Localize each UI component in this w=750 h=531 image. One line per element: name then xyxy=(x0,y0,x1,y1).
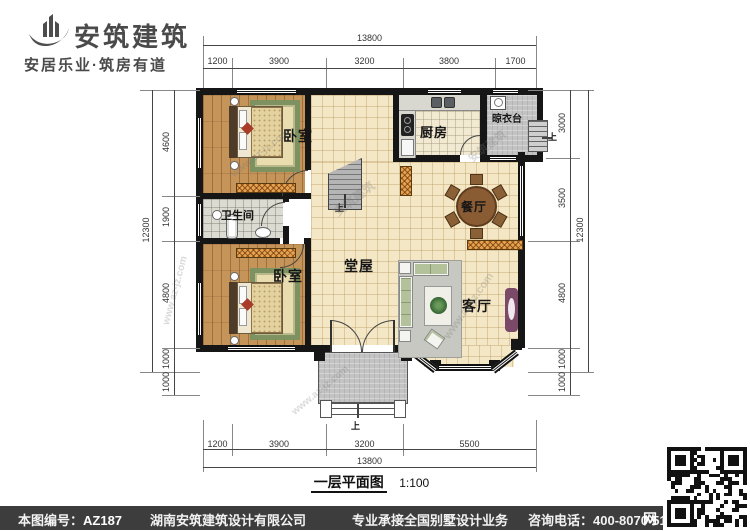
nightstand-bottom-2 xyxy=(230,336,239,345)
porch-steps xyxy=(332,402,394,418)
dim-line-right-segments xyxy=(570,90,571,395)
dim-left-total: 12300 xyxy=(141,208,151,252)
dim-line-bottom-total xyxy=(203,467,536,468)
extension-line xyxy=(546,158,580,159)
dim-left-seg-3: 4800 xyxy=(161,271,171,315)
window-bedroom-bottom-left xyxy=(196,283,203,335)
room-label-kitchen: 厨房 xyxy=(420,122,448,141)
dining-chair-4 xyxy=(470,228,483,239)
bed-bottom-pillow-2 xyxy=(239,308,247,326)
dim-line-right-total xyxy=(588,90,589,372)
extension-line xyxy=(140,90,200,91)
dim-line-top-segments xyxy=(203,68,536,69)
qr-module xyxy=(743,523,747,527)
wardrobe-bedroom-top xyxy=(236,183,296,193)
room-label-hall: 堂屋 xyxy=(344,256,374,276)
window-bathroom xyxy=(196,204,203,236)
nightstand-top-1 xyxy=(230,97,239,106)
dining-chair-1 xyxy=(470,174,483,185)
room-label-bathroom: 卫生间 xyxy=(221,207,254,223)
room-label-drying-balcony: 晾衣台 xyxy=(492,110,522,125)
window-bedroom-top xyxy=(237,88,296,95)
up-label-porch: 上 xyxy=(351,419,360,432)
net-label: 网 xyxy=(643,509,657,529)
drawing-number-label: 本图编号： xyxy=(18,513,83,528)
extension-line xyxy=(528,348,580,349)
wall-bathroom-bottom-a xyxy=(196,238,280,244)
room-label-dining: 餐厅 xyxy=(461,198,487,215)
up-label-balcony: 上 xyxy=(548,130,557,143)
hall-cabinet xyxy=(400,166,412,196)
sofa-left-cushion xyxy=(401,278,411,326)
wall-balcony-right-a xyxy=(537,95,543,120)
dim-line-top-total xyxy=(203,45,536,46)
dim-top-seg-2: 3900 xyxy=(232,56,326,66)
dining-cabinet xyxy=(467,240,523,250)
dim-top-total: 13800 xyxy=(203,33,536,43)
floor-plan: 卧室 厨房 晾衣台 餐厅 卫生间 卧室 堂屋 客厅 上 上 上 安筑建筑 www… xyxy=(0,0,750,505)
porch-entry-line xyxy=(357,404,359,418)
drawing-number: 本图编号：AZ187 xyxy=(18,510,122,529)
qr-code xyxy=(663,443,750,531)
dim-bottom-seg-4: 5500 xyxy=(403,439,536,449)
dim-line-bottom-segments xyxy=(203,449,536,450)
dim-left-extra: 1000 xyxy=(161,360,171,404)
side-table-2 xyxy=(399,330,411,342)
toilet xyxy=(255,227,271,238)
dim-top-seg-1: 1200 xyxy=(203,56,232,66)
washing-machine-drum xyxy=(494,98,503,107)
phone-number: 400-8070-511 xyxy=(593,513,673,528)
phone-label: 咨询电话： xyxy=(528,513,593,528)
drawing-number-value: AZ187 xyxy=(83,513,122,528)
window-bay-bottom xyxy=(439,364,491,371)
dim-right-seg-3: 4800 xyxy=(557,271,567,315)
window-kitchen xyxy=(428,88,461,95)
porch-step-left xyxy=(320,400,332,418)
dim-line-left-total xyxy=(152,90,153,372)
dim-top-seg-3: 3200 xyxy=(326,56,403,66)
wall-bathroom-right-b xyxy=(283,226,289,244)
window-dining xyxy=(518,166,525,236)
plant xyxy=(430,297,447,314)
window-bedroom-bottom xyxy=(228,345,295,352)
dim-bottom-total: 13800 xyxy=(203,456,536,466)
extension-line xyxy=(536,36,537,88)
dim-left-seg-2: 1900 xyxy=(161,195,171,239)
plan-title-row: 一层平面图 1:100 xyxy=(270,472,470,492)
wall-bedroom-bottom-right xyxy=(305,238,311,352)
dim-top-seg-4: 3800 xyxy=(403,56,495,66)
plan-title: 一层平面图 xyxy=(311,474,387,493)
dim-right-seg-2: 3500 xyxy=(557,176,567,220)
sofa-top-cushion xyxy=(415,264,447,274)
extension-line xyxy=(528,241,580,242)
dim-right-seg-1: 3000 xyxy=(557,101,567,145)
extension-line xyxy=(162,241,200,242)
entry-door-leaf-left xyxy=(330,320,332,352)
dim-right-extra: 1000 xyxy=(557,360,567,404)
kitchen-sink-1 xyxy=(431,97,442,108)
bed-top-pillow-2 xyxy=(239,132,247,150)
bay-post-4 xyxy=(511,339,522,350)
stair-hall-floor xyxy=(311,95,393,162)
entry-door-leaf-right xyxy=(393,320,395,352)
window-balcony-top xyxy=(493,88,518,95)
dim-left-seg-1: 4600 xyxy=(161,120,171,164)
room-label-bedroom-bottom: 卧室 xyxy=(273,266,303,286)
stove-burner-2 xyxy=(404,126,411,133)
side-table-1 xyxy=(399,262,411,274)
dim-bottom-seg-3: 3200 xyxy=(326,439,403,449)
company-name: 湖南安筑建筑设计有限公司 xyxy=(150,510,306,529)
plan-scale: 1:100 xyxy=(399,476,429,490)
balcony-steps xyxy=(528,120,548,152)
dim-right-total: 12300 xyxy=(575,208,585,252)
stove-burner-1 xyxy=(404,117,411,124)
nightstand-bottom-1 xyxy=(230,272,239,281)
footer-bar: 本图编号：AZ187 湖南安筑建筑设计有限公司 专业承接全国别墅设计业务 咨询电… xyxy=(0,506,750,530)
service-text: 专业承接全国别墅设计业务 xyxy=(352,510,508,529)
dim-bottom-seg-2: 3900 xyxy=(232,439,326,449)
dim-top-seg-5: 1700 xyxy=(495,56,536,66)
dim-line-left-segments xyxy=(174,90,175,395)
kitchen-sink-2 xyxy=(444,97,455,108)
extension-line xyxy=(536,420,537,472)
porch-step-right xyxy=(394,400,406,418)
window-bedroom-top-left xyxy=(196,118,203,168)
bed-bottom-headboard xyxy=(229,282,237,334)
dim-bottom-seg-1: 1200 xyxy=(203,439,232,449)
window-balcony-inner xyxy=(490,155,516,162)
bed-bottom-blanket xyxy=(251,283,282,333)
extension-line xyxy=(528,90,594,91)
fridge xyxy=(401,139,414,156)
bed-top-headboard xyxy=(229,106,237,158)
extension-line xyxy=(528,395,580,396)
piano-lid xyxy=(508,298,515,320)
wardrobe-bedroom-bottom xyxy=(236,248,296,258)
